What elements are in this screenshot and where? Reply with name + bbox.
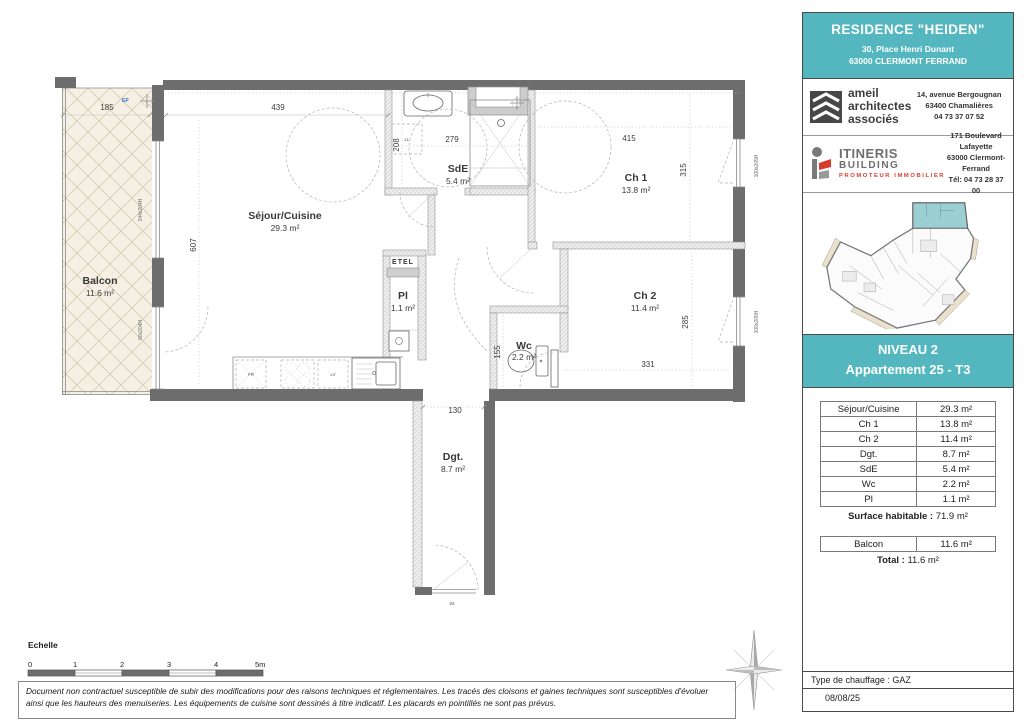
svg-text:0: 0 (28, 660, 32, 669)
scale-label: Echelle (28, 640, 58, 650)
disclaimer-line1: Document non contractuel susceptible de … (26, 685, 728, 697)
room-area-balcon: 11.6 m² (86, 288, 114, 298)
svg-text:4: 4 (214, 660, 218, 669)
windows (152, 139, 745, 595)
plan-sheet: LL FR (0, 0, 1024, 725)
window-west-1 (152, 141, 164, 258)
total-line: Total : 11.6 m² (820, 555, 996, 566)
disclaimer-box: Document non contractuel susceptible de … (18, 681, 736, 719)
apartment-title: Appartement 25 - T3 (803, 360, 1013, 380)
duct (468, 87, 528, 115)
dimension-texts: 185 439 279 208 415 315 607 285 331 155 … (100, 103, 690, 606)
dim-wc-d: 155 (493, 345, 502, 359)
table-row: Ch 211.4 m² (821, 432, 996, 447)
level-title: NIVEAU 2 (803, 340, 1013, 360)
scale-bar: Echelle 0 1 2 3 4 5m (24, 638, 284, 680)
table-row: Pl1.1 m² (821, 492, 996, 507)
title-block: RESIDENCE "HEIDEN" 30, Place Henri Dunan… (802, 12, 1014, 712)
window-label-4: 100x205H (754, 310, 760, 333)
door-entry (433, 545, 478, 590)
door-balcony (163, 307, 208, 352)
room-label-balcon: Balcon (82, 275, 117, 287)
svg-text:3: 3 (167, 660, 171, 669)
dim-sejour-w: 439 (271, 103, 285, 112)
promoter-logo-icon (809, 145, 835, 183)
architect-logo-icon (809, 90, 843, 124)
dim-dgt-w: 130 (448, 406, 462, 415)
markers: EP (122, 94, 524, 110)
sink (352, 358, 400, 389)
room-area-sejour: 29.3 m² (271, 223, 300, 233)
table-row: Balcon11.6 m² (821, 537, 996, 552)
hob (281, 360, 314, 388)
project-address: 30, Place Henri Dunant 63000 CLERMONT FE… (807, 44, 1009, 68)
room-label-pl: Pl (398, 290, 408, 302)
project-address-line1: 30, Place Henri Dunant (807, 44, 1009, 56)
architect-name: ameil architectes associés (848, 87, 911, 127)
disclaimer-line2: ainsi que les hauteurs des menuiseries. … (26, 697, 728, 709)
promoter-address: 171 Boulevard Lafayette 63000 Clermont-F… (945, 131, 1007, 196)
room-area-sde: 5.4 m² (446, 176, 470, 186)
promoter-name: ITINERIS BUILDING PROMOTEUR IMMOBILIER (839, 147, 945, 180)
ep-marker: EP (122, 98, 129, 104)
dim-ch2-w: 331 (641, 360, 655, 369)
promoter-section: ITINERIS BUILDING PROMOTEUR IMMOBILIER 1… (803, 136, 1013, 193)
table-row: Wc2.2 m² (821, 477, 996, 492)
room-label-sde: SdE (448, 163, 468, 175)
room-labels: Balcon 11.6 m² Séjour/Cuisine 29.3 m² Sd… (82, 163, 659, 474)
svg-text:2: 2 (120, 660, 124, 669)
room-area-wc: 2.2 m² (512, 352, 536, 362)
entry-threshold (432, 587, 476, 595)
architect-address: 14, avenue Bergougnan 63400 Chamalières … (911, 90, 1007, 123)
room-area-pl: 1.1 m² (391, 303, 415, 313)
room-label-ch2: Ch 2 (634, 290, 657, 302)
scale-segments (28, 670, 263, 676)
window-label-3: 100x205H (754, 154, 760, 177)
project-header: RESIDENCE "HEIDEN" 30, Place Henri Dunan… (803, 13, 1013, 79)
room-label-dgt: Dgt. (443, 451, 463, 463)
dishwasher: LV (318, 360, 348, 388)
title-block-footer: Type de chauffage : GAZ 08/08/25 (803, 671, 1013, 711)
balcony-table: Balcon11.6 m² (820, 536, 996, 552)
water-heater (389, 331, 409, 351)
project-title: RESIDENCE "HEIDEN" (807, 22, 1009, 37)
scale-ticks: 0 1 2 3 4 5m (28, 660, 265, 669)
washbasin (404, 91, 452, 116)
balcony-area (62, 88, 152, 395)
key-plan-map (822, 197, 994, 329)
room-label-ch1: Ch 1 (625, 172, 648, 184)
key-plan (803, 193, 1013, 334)
room-area-ch1: 13.8 m² (622, 185, 651, 195)
level-banner: NIVEAU 2 Appartement 25 - T3 (803, 334, 1013, 388)
dim-sde-d: 208 (392, 138, 401, 152)
table-row: Dgt.8.7 m² (821, 447, 996, 462)
table-row: Ch 113.8 m² (821, 417, 996, 432)
dim-entry-w: 93 (449, 601, 455, 606)
svg-text:LL: LL (404, 137, 410, 142)
areas-table: Séjour/Cuisine29.3 m² Ch 113.8 m² Ch 211… (820, 401, 996, 507)
dim-ch2-d: 285 (681, 315, 690, 329)
dim-ch1-w: 415 (622, 134, 636, 143)
room-label-sejour: Séjour/Cuisine (248, 210, 322, 222)
room-area-dgt: 8.7 m² (441, 464, 465, 474)
plan-date: 08/08/25 (803, 688, 1013, 711)
svg-text:1: 1 (73, 660, 77, 669)
room-label-etel: ETEL (392, 259, 414, 266)
window-label-1: 244x204H (138, 198, 144, 221)
heating-type: Type de chauffage : GAZ (803, 671, 1013, 688)
partitions (383, 90, 745, 389)
room-label-wc: Wc (516, 340, 532, 352)
dim-sde-w: 279 (445, 135, 459, 144)
etel-box (387, 268, 419, 277)
window-east-1 (718, 139, 745, 187)
architect-section: ameil architectes associés 14, avenue Be… (803, 79, 1013, 136)
window-west-2 (152, 307, 164, 389)
svg-text:FR: FR (248, 372, 255, 377)
balcony-floor (62, 88, 152, 395)
dim-sejour-d: 607 (189, 238, 198, 252)
window-label-2: 90x204H (138, 320, 144, 340)
project-address-line2: 63000 CLERMONT FERRAND (807, 56, 1009, 68)
areas-section: Séjour/Cuisine29.3 m² Ch 113.8 m² Ch 211… (803, 388, 1013, 566)
dim-ch1-d: 315 (679, 163, 688, 177)
door-ch2 (454, 258, 488, 352)
kitchen-counter: FR LV (233, 357, 403, 389)
floor-plan-drawing: LL FR (0, 0, 800, 680)
table-row: Séjour/Cuisine29.3 m² (821, 402, 996, 417)
window-east-2 (718, 297, 745, 346)
fridge: FR (236, 360, 266, 388)
table-row: SdE5.4 m² (821, 462, 996, 477)
door-ch1 (487, 247, 533, 293)
room-area-ch2: 11.4 m² (631, 303, 659, 313)
dim-balcon-w: 185 (100, 103, 114, 112)
svg-text:5m: 5m (255, 660, 265, 669)
surface-habitable: Surface habitable : 71.9 m² (820, 511, 996, 522)
svg-text:LV: LV (330, 372, 335, 377)
